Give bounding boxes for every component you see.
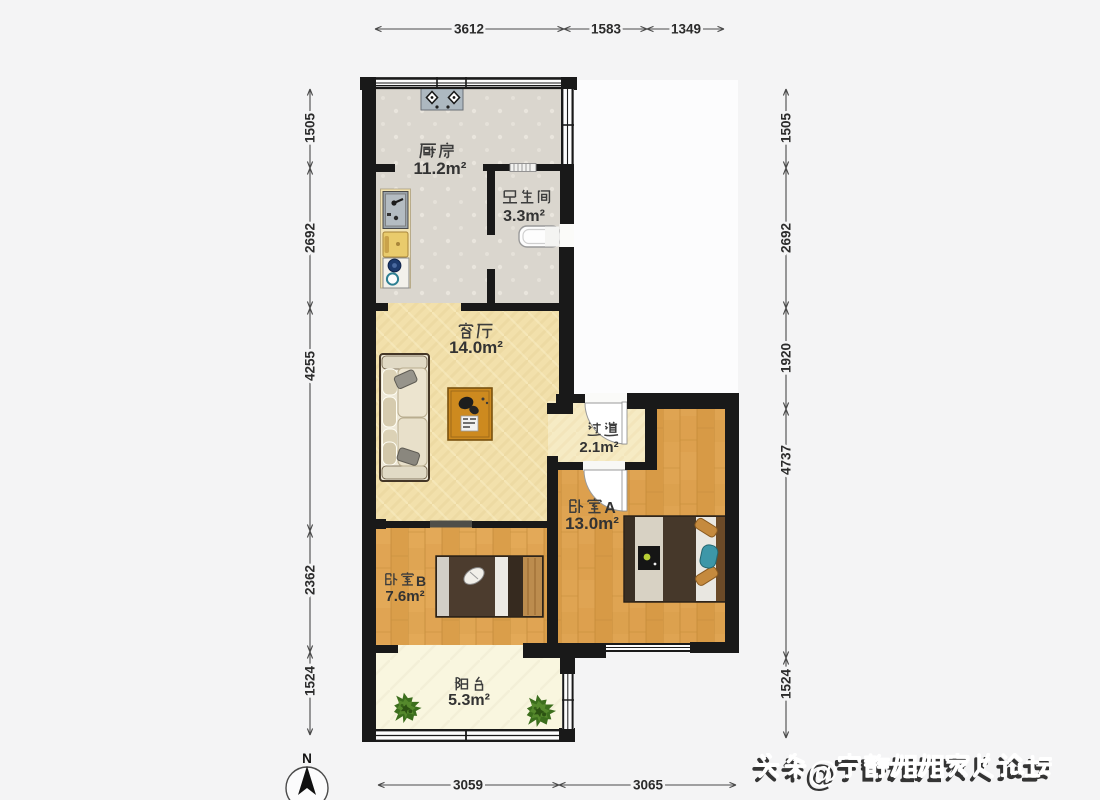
svg-text:13.0m²: 13.0m² [565,514,619,533]
svg-text:4255: 4255 [303,350,318,381]
svg-text:1920: 1920 [779,343,794,373]
svg-text:4737: 4737 [779,445,794,475]
svg-text:1349: 1349 [671,22,701,37]
svg-text:3065: 3065 [633,778,664,793]
svg-text:1505: 1505 [303,112,318,143]
svg-text:3612: 3612 [454,22,484,37]
svg-text:B: B [416,573,426,589]
svg-text:1524: 1524 [303,665,318,696]
svg-text:5.3m²: 5.3m² [448,692,490,709]
svg-text:1505: 1505 [779,112,794,143]
svg-text:N: N [302,751,312,766]
svg-text:2362: 2362 [303,565,318,595]
svg-text:3.3m²: 3.3m² [503,208,545,225]
svg-text:1583: 1583 [591,22,622,37]
svg-text:3059: 3059 [453,778,483,793]
svg-text:2.1m²: 2.1m² [579,439,618,456]
svg-text:2692: 2692 [303,223,318,253]
svg-text:14.0m²: 14.0m² [449,338,503,357]
svg-text:7.6m²: 7.6m² [385,588,424,605]
svg-text:11.2m²: 11.2m² [414,159,467,178]
svg-text:1524: 1524 [779,668,794,699]
svg-text:2692: 2692 [779,223,794,253]
svg-text:@: @ [808,754,838,789]
